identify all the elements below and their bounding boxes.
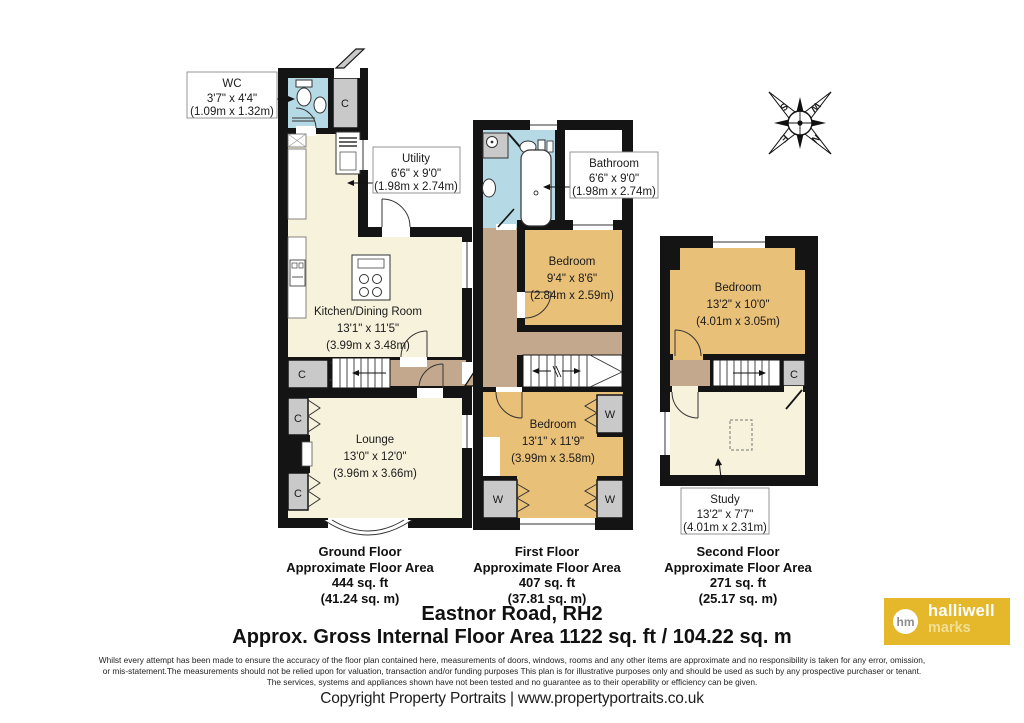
disclaimer-line-2: or mis-statement.The measurements should… — [0, 666, 1024, 677]
closet-lounge-upper-label: C — [294, 413, 302, 425]
svg-text:6'6" x 9'0": 6'6" x 9'0" — [589, 173, 639, 185]
open-door-leaf — [336, 49, 364, 68]
closet-lounge-lower-label: C — [294, 488, 302, 500]
floor-sqft: 271 sq. ft — [643, 575, 833, 591]
first-landing-band — [483, 332, 622, 355]
svg-text:(1.09m x 1.32m): (1.09m x 1.32m) — [190, 106, 274, 118]
first-stairs — [523, 355, 622, 387]
logo-monogram: hm — [893, 609, 918, 634]
floor-name: Ground Floor — [265, 544, 455, 560]
lounge-door-opening — [417, 388, 443, 398]
svg-text:Study: Study — [710, 494, 740, 506]
chimney-left — [670, 248, 680, 270]
svg-text:13'1" x 11'9": 13'1" x 11'9" — [522, 436, 584, 448]
svg-text:Bedroom: Bedroom — [715, 282, 762, 294]
agency-logo: hm halliwell marks — [884, 598, 1010, 645]
svg-text:Bedroom: Bedroom — [530, 419, 577, 431]
first-floor-caption: First Floor Approximate Floor Area 407 s… — [452, 544, 642, 606]
ground-floor-caption: Ground Floor Approximate Floor Area 444 … — [265, 544, 455, 606]
bedroom1-bottom-wall — [517, 325, 633, 332]
floor-name: First Floor — [452, 544, 642, 560]
fireplace-hearth — [302, 442, 312, 466]
closet-stairs-label: C — [298, 369, 306, 381]
disclaimer: Whilst every attempt has been made to en… — [0, 655, 1024, 687]
study-label-box: Study 13'2" x 7'7" (4.01m x 2.31m) — [681, 488, 769, 534]
kitchen-rear-door-opening — [382, 227, 410, 237]
svg-text:13'0" x 12'0": 13'0" x 12'0" — [343, 451, 406, 463]
wardrobe-top-right-label: W — [605, 409, 616, 421]
wardrobe-bottom-left-label: W — [493, 494, 504, 506]
svg-text:(3.99m x 3.58m): (3.99m x 3.58m) — [511, 453, 595, 465]
logo-name-top: halliwell — [928, 603, 995, 620]
svg-text:Utility: Utility — [402, 153, 430, 165]
svg-text:(1.98m x 2.74m): (1.98m x 2.74m) — [374, 181, 458, 193]
address-title: Eastnor Road, RH2 — [0, 603, 1024, 626]
compass-rose: N E S W — [738, 61, 862, 185]
floor-approx: Approximate Floor Area — [643, 560, 833, 576]
floor-sqft: 407 sq. ft — [452, 575, 642, 591]
closet-top-label: C — [341, 98, 349, 110]
copyright-line: Copyright Property Portraits | www.prope… — [0, 690, 1024, 708]
svg-text:3'7" x 4'4": 3'7" x 4'4" — [207, 93, 257, 105]
title-block: Eastnor Road, RH2 Approx. Gross Internal… — [0, 603, 1024, 648]
bedroom3-door-opening — [673, 354, 703, 360]
kitchen-hall-door-opening — [400, 357, 427, 367]
second-floor-caption: Second Floor Approximate Floor Area 271 … — [643, 544, 833, 606]
chimney-right — [795, 248, 805, 270]
study-room — [670, 392, 805, 475]
svg-text:(2.84m x 2.59m): (2.84m x 2.59m) — [530, 290, 614, 302]
svg-text:Bedroom: Bedroom — [549, 256, 596, 268]
second-landing — [670, 360, 710, 386]
bedroom2-door-opening — [496, 387, 522, 392]
rear-door-opening — [334, 68, 360, 78]
wardrobe-bottom-right-label: W — [605, 494, 616, 506]
kitchen-rear-door — [382, 199, 410, 227]
svg-text:(1.98m x 2.74m): (1.98m x 2.74m) — [572, 186, 656, 198]
bedroom2-recess — [483, 437, 500, 476]
svg-text:WC: WC — [222, 78, 241, 90]
second-floor-plan: Bedroom 13'2" x 10'0" (4.01m x 3.05m) — [660, 236, 818, 486]
floor-name: Second Floor — [643, 544, 833, 560]
svg-text:Bathroom: Bathroom — [589, 158, 639, 170]
closet-second-label: C — [790, 369, 798, 381]
first-landing-column — [483, 228, 517, 392]
floor-sqft: 444 sq. ft — [265, 575, 455, 591]
svg-text:Lounge: Lounge — [356, 434, 394, 446]
closet-stairs — [288, 360, 328, 388]
disclaimer-line-1: Whilst every attempt has been made to en… — [0, 655, 1024, 666]
study-door-opening — [672, 386, 698, 392]
floorplan-page: { "address": "Eastnor Road, RH2", "gross… — [0, 0, 1024, 723]
svg-text:Kitchen/Dining Room: Kitchen/Dining Room — [314, 306, 422, 318]
svg-text:(4.01m x 2.31m): (4.01m x 2.31m) — [683, 522, 767, 534]
svg-text:9'4" x 8'6": 9'4" x 8'6" — [547, 273, 597, 285]
svg-text:13'2" x 7'7": 13'2" x 7'7" — [697, 509, 754, 521]
ground-floor-plan: C — [278, 49, 491, 535]
disclaimer-line-3: The services, systems and appliances sho… — [0, 677, 1024, 688]
svg-text:(3.99m x 3.48m): (3.99m x 3.48m) — [326, 340, 410, 352]
floor-approx: Approximate Floor Area — [265, 560, 455, 576]
svg-text:13'2" x 10'0": 13'2" x 10'0" — [706, 299, 769, 311]
gross-area-title: Approx. Gross Internal Floor Area 1122 s… — [0, 626, 1024, 649]
bedroom1-door-opening — [517, 292, 525, 318]
floor-approx: Approximate Floor Area — [452, 560, 642, 576]
svg-text:13'1" x 11'5": 13'1" x 11'5" — [337, 323, 399, 335]
bay-window — [324, 518, 412, 535]
svg-text:(3.96m x 3.66m): (3.96m x 3.66m) — [333, 468, 417, 480]
logo-name-bottom: marks — [928, 620, 995, 637]
second-stairs — [713, 360, 780, 386]
ground-stairs — [332, 358, 390, 388]
svg-text:6'6" x 9'0": 6'6" x 9'0" — [391, 168, 441, 180]
svg-text:(4.01m x 3.05m): (4.01m x 3.05m) — [696, 316, 780, 328]
